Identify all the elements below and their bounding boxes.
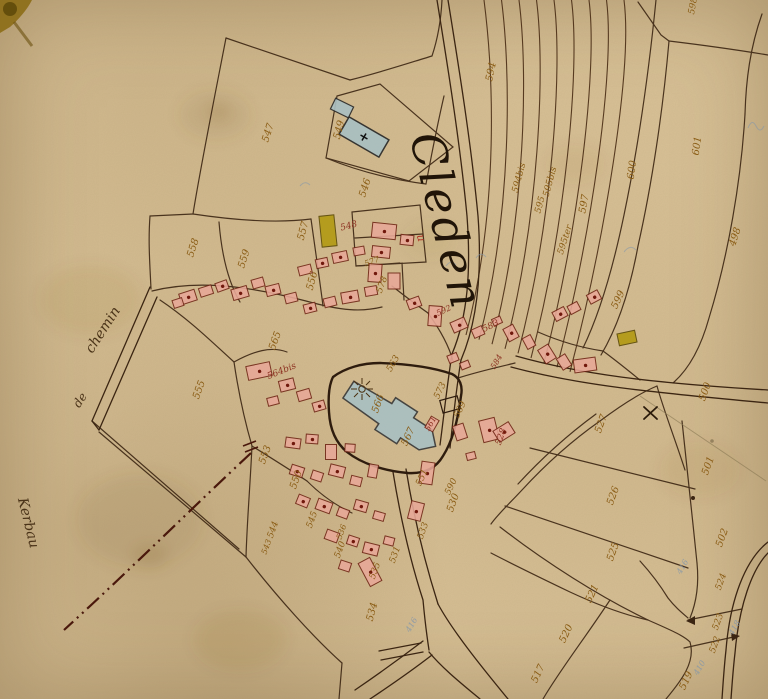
cadastral-map: Cleden u chemindeKerbau 594594bis595bis5… — [0, 0, 768, 699]
building — [353, 246, 365, 256]
building — [388, 273, 400, 289]
building — [419, 461, 435, 485]
building — [306, 434, 319, 444]
building — [315, 257, 329, 268]
building — [326, 445, 337, 460]
building — [367, 464, 378, 478]
yellow-building — [319, 215, 337, 247]
building — [341, 290, 360, 304]
building — [371, 222, 396, 239]
building — [573, 357, 597, 373]
building — [350, 475, 363, 486]
building — [428, 306, 442, 327]
paper-texture — [0, 0, 768, 699]
building — [466, 452, 476, 461]
building — [368, 264, 382, 283]
building — [364, 286, 377, 297]
building — [285, 437, 301, 449]
building — [371, 246, 390, 259]
building — [345, 444, 356, 453]
building — [400, 234, 414, 245]
building — [383, 536, 395, 546]
map-linework — [0, 0, 768, 699]
